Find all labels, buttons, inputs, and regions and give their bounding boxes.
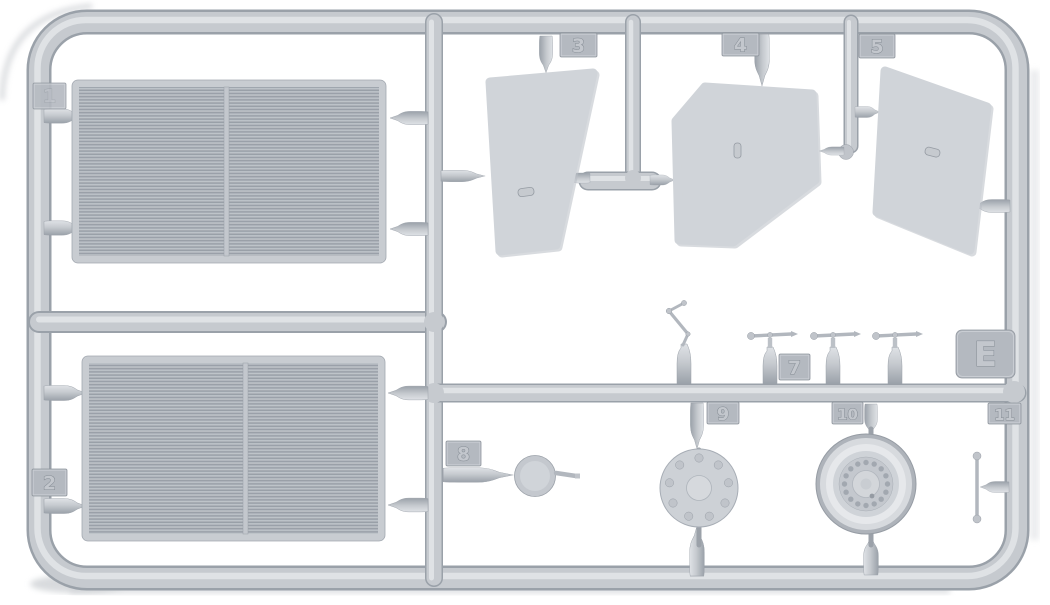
part-panel-4	[676, 87, 817, 244]
part-wheel-10	[816, 429, 916, 545]
tag-9-label: 9	[717, 404, 730, 425]
runner-junction	[625, 170, 641, 186]
tag-2: 2	[32, 469, 67, 496]
tag-8: 8	[446, 441, 481, 466]
tag-10: 10	[832, 402, 863, 424]
tag-1-label: 1	[43, 86, 56, 108]
tag-8-label: 8	[457, 444, 470, 466]
part-radiator-2	[82, 356, 385, 541]
part-hatch-9	[660, 449, 738, 545]
part-panel-5	[877, 71, 989, 252]
part-crank-lever	[666, 300, 691, 384]
tag-1: 1	[33, 83, 66, 109]
part-radiator-1	[72, 80, 386, 263]
part-panel-3	[490, 73, 595, 253]
part-cap-8	[515, 456, 581, 497]
tag-3-label: 3	[572, 35, 585, 57]
runner-junction	[1003, 381, 1025, 403]
tag-7-label: 7	[788, 357, 801, 379]
tag-10-label: 10	[837, 406, 858, 424]
tag-5-label: 5	[870, 36, 883, 58]
tag-4-label: 4	[734, 35, 747, 57]
part-rod-11	[973, 452, 981, 523]
tag-11: 11	[988, 403, 1021, 424]
sprue-svg: 1 2 3 4 5 7 8 9 10 1	[0, 0, 1050, 605]
part-t-handle-c	[872, 331, 923, 384]
sprue-photo: 1 2 3 4 5 7 8 9 10 1	[0, 0, 1050, 605]
tag-4: 4	[722, 33, 759, 57]
tag-5: 5	[859, 34, 895, 58]
tag-11-label: 11	[994, 406, 1015, 424]
part-t-handle-b	[810, 331, 861, 384]
tag-7: 7	[779, 354, 810, 380]
tag-E-label: E	[974, 335, 997, 375]
tag-E: E	[956, 330, 1015, 378]
tag-2-label: 2	[43, 473, 56, 495]
tag-3: 3	[560, 33, 597, 57]
runner-junction	[424, 312, 444, 332]
tag-9: 9	[707, 402, 739, 425]
